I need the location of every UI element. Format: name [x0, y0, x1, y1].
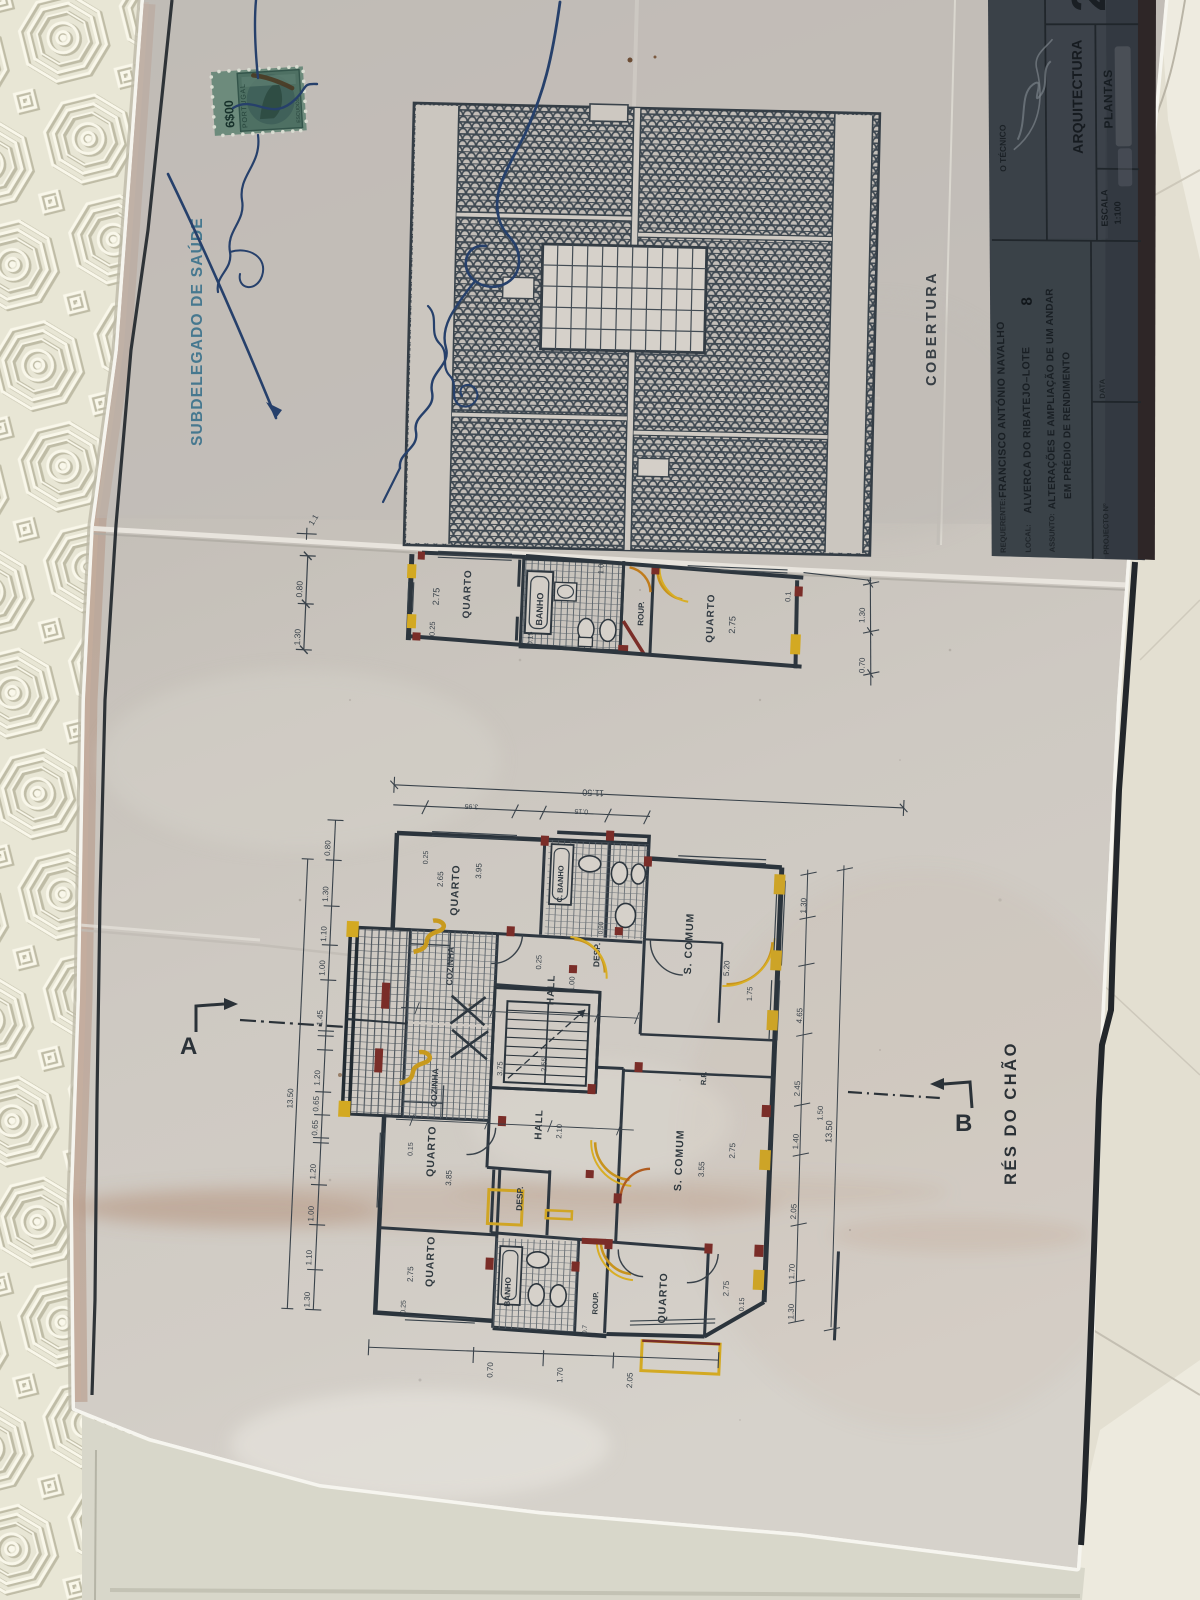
svg-text:1.00: 1.00 [567, 976, 577, 991]
svg-text:ESCALA: ESCALA [1099, 189, 1109, 227]
svg-text:11.50: 11.50 [582, 787, 604, 798]
svg-text:FRANCISCO ANTÓNIO NAVALHO: FRANCISCO ANTÓNIO NAVALHO [994, 321, 1009, 498]
svg-text:LOCAL:: LOCAL: [1023, 524, 1032, 552]
svg-text:BANHO: BANHO [503, 1277, 513, 1307]
svg-text:0.15: 0.15 [527, 631, 535, 645]
svg-text:1.10: 1.10 [319, 925, 329, 942]
svg-text:1.00: 1.00 [317, 959, 327, 976]
svg-text:COZINHA: COZINHA [444, 947, 456, 986]
svg-text:2.05: 2.05 [625, 1372, 635, 1389]
svg-text:A: A [180, 1033, 197, 1060]
svg-text:PROJECTO Nº: PROJECTO Nº [1101, 503, 1111, 555]
svg-text:1.20: 1.20 [308, 1163, 318, 1180]
svg-text:6$00: 6$00 [222, 100, 238, 129]
svg-text:ROUP.: ROUP. [590, 1291, 600, 1314]
svg-text:ASSUNTO:: ASSUNTO: [1047, 513, 1056, 552]
svg-text:1.30: 1.30 [857, 607, 867, 623]
svg-text:1.30: 1.30 [786, 1303, 796, 1320]
svg-text:2.45: 2.45 [792, 1080, 802, 1097]
svg-text:ARQUITECTURA: ARQUITECTURA [1068, 39, 1085, 154]
svg-text:3.95: 3.95 [464, 802, 478, 810]
svg-text:0.15: 0.15 [407, 1142, 415, 1156]
svg-text:8: 8 [1019, 297, 1036, 306]
svg-text:0.80: 0.80 [323, 840, 333, 857]
svg-text:2.05: 2.05 [789, 1203, 799, 1220]
svg-text:QUARTO: QUARTO [448, 864, 462, 916]
svg-text:5.20: 5.20 [722, 960, 732, 977]
svg-text:1.20: 1.20 [312, 1069, 322, 1086]
svg-text:3.95: 3.95 [474, 862, 484, 879]
svg-text:1.45: 1.45 [315, 1009, 325, 1026]
svg-text:1.50: 1.50 [815, 1106, 825, 1121]
svg-text:2.75: 2.75 [727, 616, 738, 634]
svg-text:2: 2 [1063, 0, 1116, 12]
svg-text:0.80: 0.80 [294, 580, 305, 597]
svg-text:4.65: 4.65 [795, 1007, 805, 1024]
svg-text:1.30: 1.30 [799, 897, 809, 914]
svg-text:B: B [955, 1110, 972, 1137]
svg-text:13.50: 13.50 [285, 1088, 295, 1109]
svg-text:2.75: 2.75 [431, 587, 442, 605]
svg-text:0.70: 0.70 [485, 1361, 495, 1378]
svg-text:1.30: 1.30 [302, 1291, 312, 1308]
svg-text:QUARTO: QUARTO [704, 593, 717, 643]
svg-text:0.70: 0.70 [857, 657, 867, 673]
svg-text:BANHO: BANHO [534, 592, 545, 625]
svg-text:PLANTAS: PLANTAS [1101, 69, 1116, 128]
svg-text:0.90: 0.90 [598, 921, 606, 934]
svg-text:COZINHA: COZINHA [429, 1068, 441, 1107]
svg-text:1:100: 1:100 [1112, 201, 1122, 224]
svg-text:3.85: 3.85 [444, 1169, 454, 1186]
svg-text:1.75: 1.75 [745, 986, 755, 1001]
svg-text:2.75: 2.75 [721, 1280, 731, 1297]
svg-text:HALL: HALL [533, 1109, 545, 1140]
svg-text:0.65: 0.65 [310, 1119, 320, 1136]
svg-text:QUARTO: QUARTO [656, 1272, 670, 1324]
svg-text:1.30: 1.30 [292, 628, 303, 645]
svg-text:2.65: 2.65 [436, 871, 446, 888]
svg-text:13.50: 13.50 [823, 1120, 834, 1143]
svg-text:ROUP.: ROUP. [636, 601, 646, 626]
svg-text:ALVERCA DO RIBATEJO–LOTE: ALVERCA DO RIBATEJO–LOTE [1020, 347, 1034, 514]
svg-text:0.1: 0.1 [783, 591, 792, 602]
svg-text:1.70: 1.70 [555, 1367, 565, 1384]
svg-text:0.25: 0.25 [534, 955, 544, 970]
svg-text:REQUERENTE:: REQUERENTE: [998, 498, 1008, 553]
svg-text:1.70: 1.70 [787, 1263, 797, 1280]
svg-text:1.30: 1.30 [321, 886, 331, 903]
svg-text:0.15: 0.15 [739, 1297, 747, 1311]
svg-text:3.55: 3.55 [697, 1161, 707, 1178]
svg-text:1.00: 1.00 [306, 1205, 316, 1222]
svg-text:1.10: 1.10 [304, 1249, 314, 1266]
svg-text:QUARTO: QUARTO [461, 569, 474, 619]
svg-text:0.65: 0.65 [311, 1095, 321, 1112]
svg-text:C. BANHO: C. BANHO [555, 865, 566, 903]
svg-text:1.40: 1.40 [791, 1133, 801, 1150]
svg-text:O TÉCNICO: O TÉCNICO [998, 124, 1009, 172]
svg-text:2.75: 2.75 [728, 1142, 738, 1159]
svg-text:DATA: DATA [1098, 378, 1107, 398]
svg-text:0.7: 0.7 [581, 1324, 588, 1334]
svg-text:QUARTO: QUARTO [424, 1125, 438, 1177]
svg-text:3.75: 3.75 [495, 1061, 505, 1076]
svg-text:RÉS DO CHÃO: RÉS DO CHÃO [1000, 1041, 1020, 1185]
svg-text:0.15: 0.15 [574, 807, 588, 815]
svg-text:0.25: 0.25 [428, 621, 438, 636]
svg-text:COBERTURA: COBERTURA [924, 271, 940, 386]
svg-text:QUARTO: QUARTO [423, 1235, 437, 1287]
svg-text:0.25: 0.25 [400, 1300, 408, 1314]
svg-text:R.P.: R.P. [699, 1071, 709, 1085]
svg-text:2.75: 2.75 [406, 1266, 416, 1283]
svg-text:0.25: 0.25 [423, 850, 431, 864]
svg-text:DESP.: DESP. [514, 1186, 525, 1211]
svg-text:2.55: 2.55 [539, 1057, 549, 1072]
